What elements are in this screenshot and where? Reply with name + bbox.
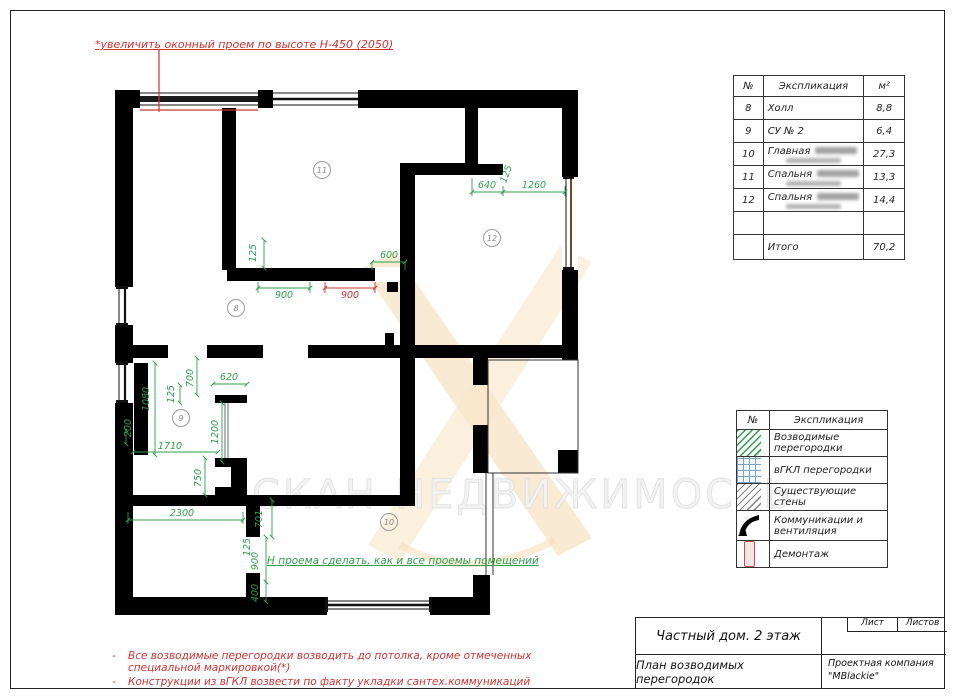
redaction-smudge bbox=[817, 170, 859, 177]
col-area: м² bbox=[864, 76, 905, 97]
dim-label: 1260 bbox=[522, 180, 546, 191]
room-num bbox=[734, 212, 764, 235]
room-num: 9 bbox=[734, 120, 764, 143]
blue-grid-swatch bbox=[737, 457, 761, 483]
svg-text:9: 9 bbox=[178, 414, 183, 423]
room-name bbox=[763, 212, 864, 235]
redaction-smudge bbox=[786, 181, 841, 186]
dim-label: 600 bbox=[380, 250, 398, 261]
legend-label: Демонтаж bbox=[770, 541, 888, 568]
svg-text:10: 10 bbox=[384, 518, 394, 527]
room-area: 6,4 bbox=[864, 120, 905, 143]
general-notes: - Все возводимые перегородки возводить д… bbox=[100, 650, 580, 690]
window-top-left bbox=[140, 90, 258, 108]
col-name: Экспликация bbox=[763, 76, 864, 97]
legend-label: Существующие стены bbox=[770, 484, 888, 511]
table-row: 9 СУ № 2 6,4 bbox=[734, 120, 905, 143]
dim-label: 1710 bbox=[158, 441, 182, 452]
window-left-lower bbox=[115, 362, 133, 403]
legend-row: вГКЛ перегородки bbox=[737, 457, 888, 484]
demolition-swatch bbox=[737, 541, 761, 567]
dim-label: 900 bbox=[250, 552, 261, 570]
room-name: Холл bbox=[763, 97, 864, 120]
dim-label: 1080 bbox=[141, 387, 152, 411]
legend-table: № Экспликация Возводимые перегородки вГК… bbox=[736, 410, 888, 568]
gray-hatch-swatch bbox=[737, 484, 761, 510]
redaction-smudge bbox=[786, 158, 841, 163]
legend-header: № Экспликация bbox=[737, 411, 888, 430]
legend-row: Коммуникации и вентиляция bbox=[737, 511, 888, 541]
room-area: 27,3 bbox=[864, 143, 905, 166]
svg-text:8: 8 bbox=[233, 304, 238, 313]
room-area: 13,3 bbox=[864, 166, 905, 189]
dim-label: 900 bbox=[275, 290, 293, 301]
room-label-11: 11 bbox=[314, 162, 331, 179]
table-row: 10 Главная 27,3 bbox=[734, 143, 905, 166]
window-left-upper bbox=[115, 286, 133, 326]
room-name: Спальня bbox=[763, 189, 864, 212]
drawing-title: План возводимых перегородок bbox=[636, 654, 821, 689]
total-num bbox=[734, 235, 764, 260]
svg-text:11: 11 bbox=[317, 166, 327, 175]
opening-height-note: Н проема сделать, как и все проемы помещ… bbox=[267, 555, 539, 567]
dim-label: 400 bbox=[250, 584, 261, 602]
legend-label: вГКЛ перегородки bbox=[770, 457, 888, 484]
window-bottom bbox=[325, 597, 432, 615]
table-header: № Экспликация м² bbox=[734, 76, 905, 97]
dim-label: 701 bbox=[254, 510, 265, 528]
dim-label: 640 bbox=[478, 180, 496, 191]
note-text: Все возводимые перегородки возводить до … bbox=[128, 650, 580, 674]
table-row: 8 Холл 8,8 bbox=[734, 97, 905, 120]
room-num: 8 bbox=[734, 97, 764, 120]
legend-col-num: № bbox=[737, 411, 770, 430]
room-name: Спальня bbox=[763, 166, 864, 189]
table-row: 11 Спальня 13,3 bbox=[734, 166, 905, 189]
demolition-partition bbox=[325, 268, 375, 281]
room-area: 14,4 bbox=[864, 189, 905, 212]
redaction-smudge bbox=[815, 147, 857, 154]
note-text: Конструкции из вГКЛ возвести по факту ук… bbox=[128, 676, 530, 688]
table-row: 12 Спальня 14,4 bbox=[734, 189, 905, 212]
redaction-smudge bbox=[817, 193, 859, 200]
company-name: Проектная компания "MBlackie" bbox=[828, 658, 944, 684]
svg-text:12: 12 bbox=[487, 234, 497, 243]
dim-label: 1200 bbox=[210, 420, 221, 444]
dim-label: 125 bbox=[248, 244, 259, 262]
room-area bbox=[864, 212, 905, 235]
legend-col-name: Экспликация bbox=[770, 411, 888, 430]
total-label: Итого bbox=[763, 235, 864, 260]
dim-label: 750 bbox=[193, 469, 204, 487]
vent-duct-swatch bbox=[737, 511, 761, 537]
window-top-mid bbox=[273, 90, 358, 108]
wall-opening bbox=[374, 267, 400, 282]
legend-row: Возводимые перегородки bbox=[737, 430, 888, 457]
dim-label: 200 bbox=[123, 419, 134, 437]
room-name: Главная bbox=[763, 143, 864, 166]
green-hatch-swatch bbox=[737, 430, 761, 456]
dim-label: 700 bbox=[185, 369, 196, 387]
object-title: Частный дом. 2 этаж bbox=[636, 618, 821, 655]
col-num: № bbox=[734, 76, 764, 97]
room-num: 10 bbox=[734, 143, 764, 166]
dim-label: 620 bbox=[220, 372, 238, 383]
note-line: - Все возводимые перегородки возводить д… bbox=[100, 650, 580, 674]
legend-row: Существующие стены bbox=[737, 484, 888, 511]
room-label-8: 8 bbox=[228, 300, 245, 317]
table-row-empty bbox=[734, 212, 905, 235]
dim-label: 125 bbox=[166, 385, 177, 403]
room-name: СУ № 2 bbox=[763, 120, 864, 143]
drawing-page: СКАН-НЕДВИЖИМОСТЬ bbox=[0, 0, 954, 698]
sheets-label: Листов bbox=[897, 618, 947, 632]
note-line: - Конструкции из вГКЛ возвести по факту … bbox=[100, 676, 580, 688]
room-num: 12 bbox=[734, 189, 764, 212]
room-label-9: 9 bbox=[173, 410, 190, 427]
legend-label: Возводимые перегородки bbox=[770, 430, 888, 457]
room-area: 8,8 bbox=[864, 97, 905, 120]
gkl-edge-lines bbox=[225, 403, 228, 458]
note-bullet: - bbox=[100, 676, 128, 688]
room-label-12: 12 bbox=[484, 230, 501, 247]
table-total-row: Итого 70,2 bbox=[734, 235, 905, 260]
window-right bbox=[562, 176, 578, 270]
legend-row: Демонтаж bbox=[737, 541, 888, 568]
note-bullet: - bbox=[100, 650, 128, 674]
explication-table: № Экспликация м² 8 Холл 8,8 9 СУ № 2 6,4… bbox=[733, 75, 905, 260]
sheet-label: Лист bbox=[848, 618, 897, 632]
title-block: Частный дом. 2 этаж План возводимых пере… bbox=[635, 617, 945, 689]
total-value: 70,2 bbox=[864, 235, 905, 260]
room-num: 11 bbox=[734, 166, 764, 189]
legend-label: Коммуникации и вентиляция bbox=[770, 511, 888, 541]
redaction-smudge bbox=[786, 204, 841, 209]
dim-label: 2300 bbox=[170, 508, 194, 519]
window-revision-note: *увеличить оконный проем по высоте Н-450… bbox=[95, 38, 415, 51]
dim-label-demolition: 900 bbox=[341, 290, 359, 301]
